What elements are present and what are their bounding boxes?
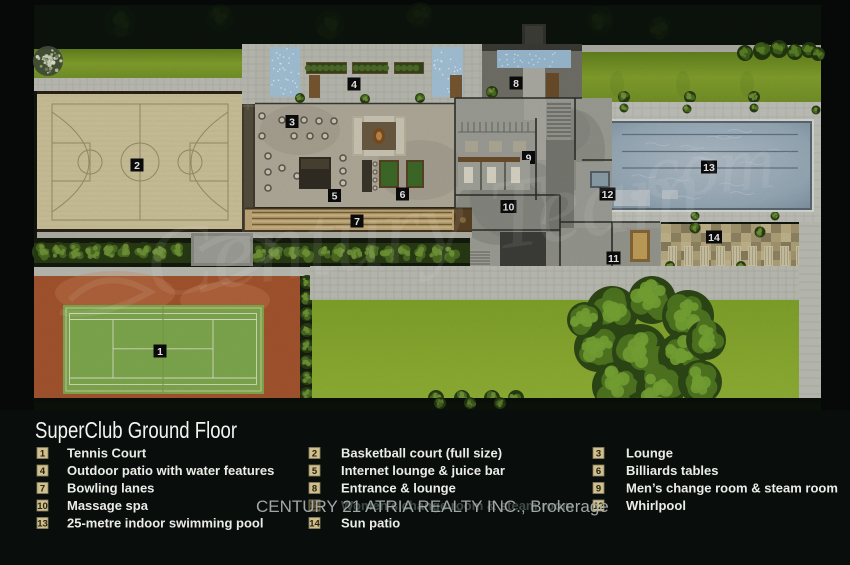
svg-text:Billiards tables: Billiards tables [626, 463, 718, 478]
svg-text:Lounge: Lounge [626, 446, 673, 461]
svg-text:Sun patio: Sun patio [341, 516, 400, 531]
svg-text:Entrance & lounge: Entrance & lounge [341, 481, 456, 496]
svg-text:7: 7 [40, 484, 45, 495]
svg-text:.com: .com [622, 117, 778, 217]
svg-text:25-metre indoor swimming pool: 25-metre indoor swimming pool [67, 516, 263, 531]
svg-text:Massage spa: Massage spa [67, 498, 149, 513]
svg-text:3: 3 [596, 449, 601, 460]
svg-text:Internet lounge & juice bar: Internet lounge & juice bar [341, 463, 505, 478]
svg-text:Whirlpool: Whirlpool [626, 498, 686, 513]
svg-text:1: 1 [40, 449, 46, 460]
svg-text:SuperClub Ground Floor: SuperClub Ground Floor [35, 417, 237, 443]
svg-text:6: 6 [596, 466, 601, 477]
svg-text:Bowling lanes: Bowling lanes [67, 481, 154, 496]
svg-text:Tennis Court: Tennis Court [67, 446, 147, 461]
svg-text:Men’s change room & steam room: Men’s change room & steam room [626, 481, 838, 496]
svg-text:8: 8 [312, 484, 317, 495]
svg-text:10: 10 [37, 501, 48, 512]
svg-text:14: 14 [309, 519, 320, 530]
svg-text:2: 2 [312, 449, 317, 460]
svg-text:9: 9 [596, 484, 601, 495]
svg-text:CENTURY 21 ATRIA REALTY INC.,: CENTURY 21 ATRIA REALTY INC., Brokerage [256, 497, 609, 516]
svg-text:Basketball court (full size): Basketball court (full size) [341, 446, 502, 461]
svg-text:4: 4 [40, 466, 46, 477]
svg-text:Outdoor patio with water featu: Outdoor patio with water features [67, 463, 274, 478]
svg-text:13: 13 [37, 519, 48, 530]
svg-text:5: 5 [312, 466, 318, 477]
